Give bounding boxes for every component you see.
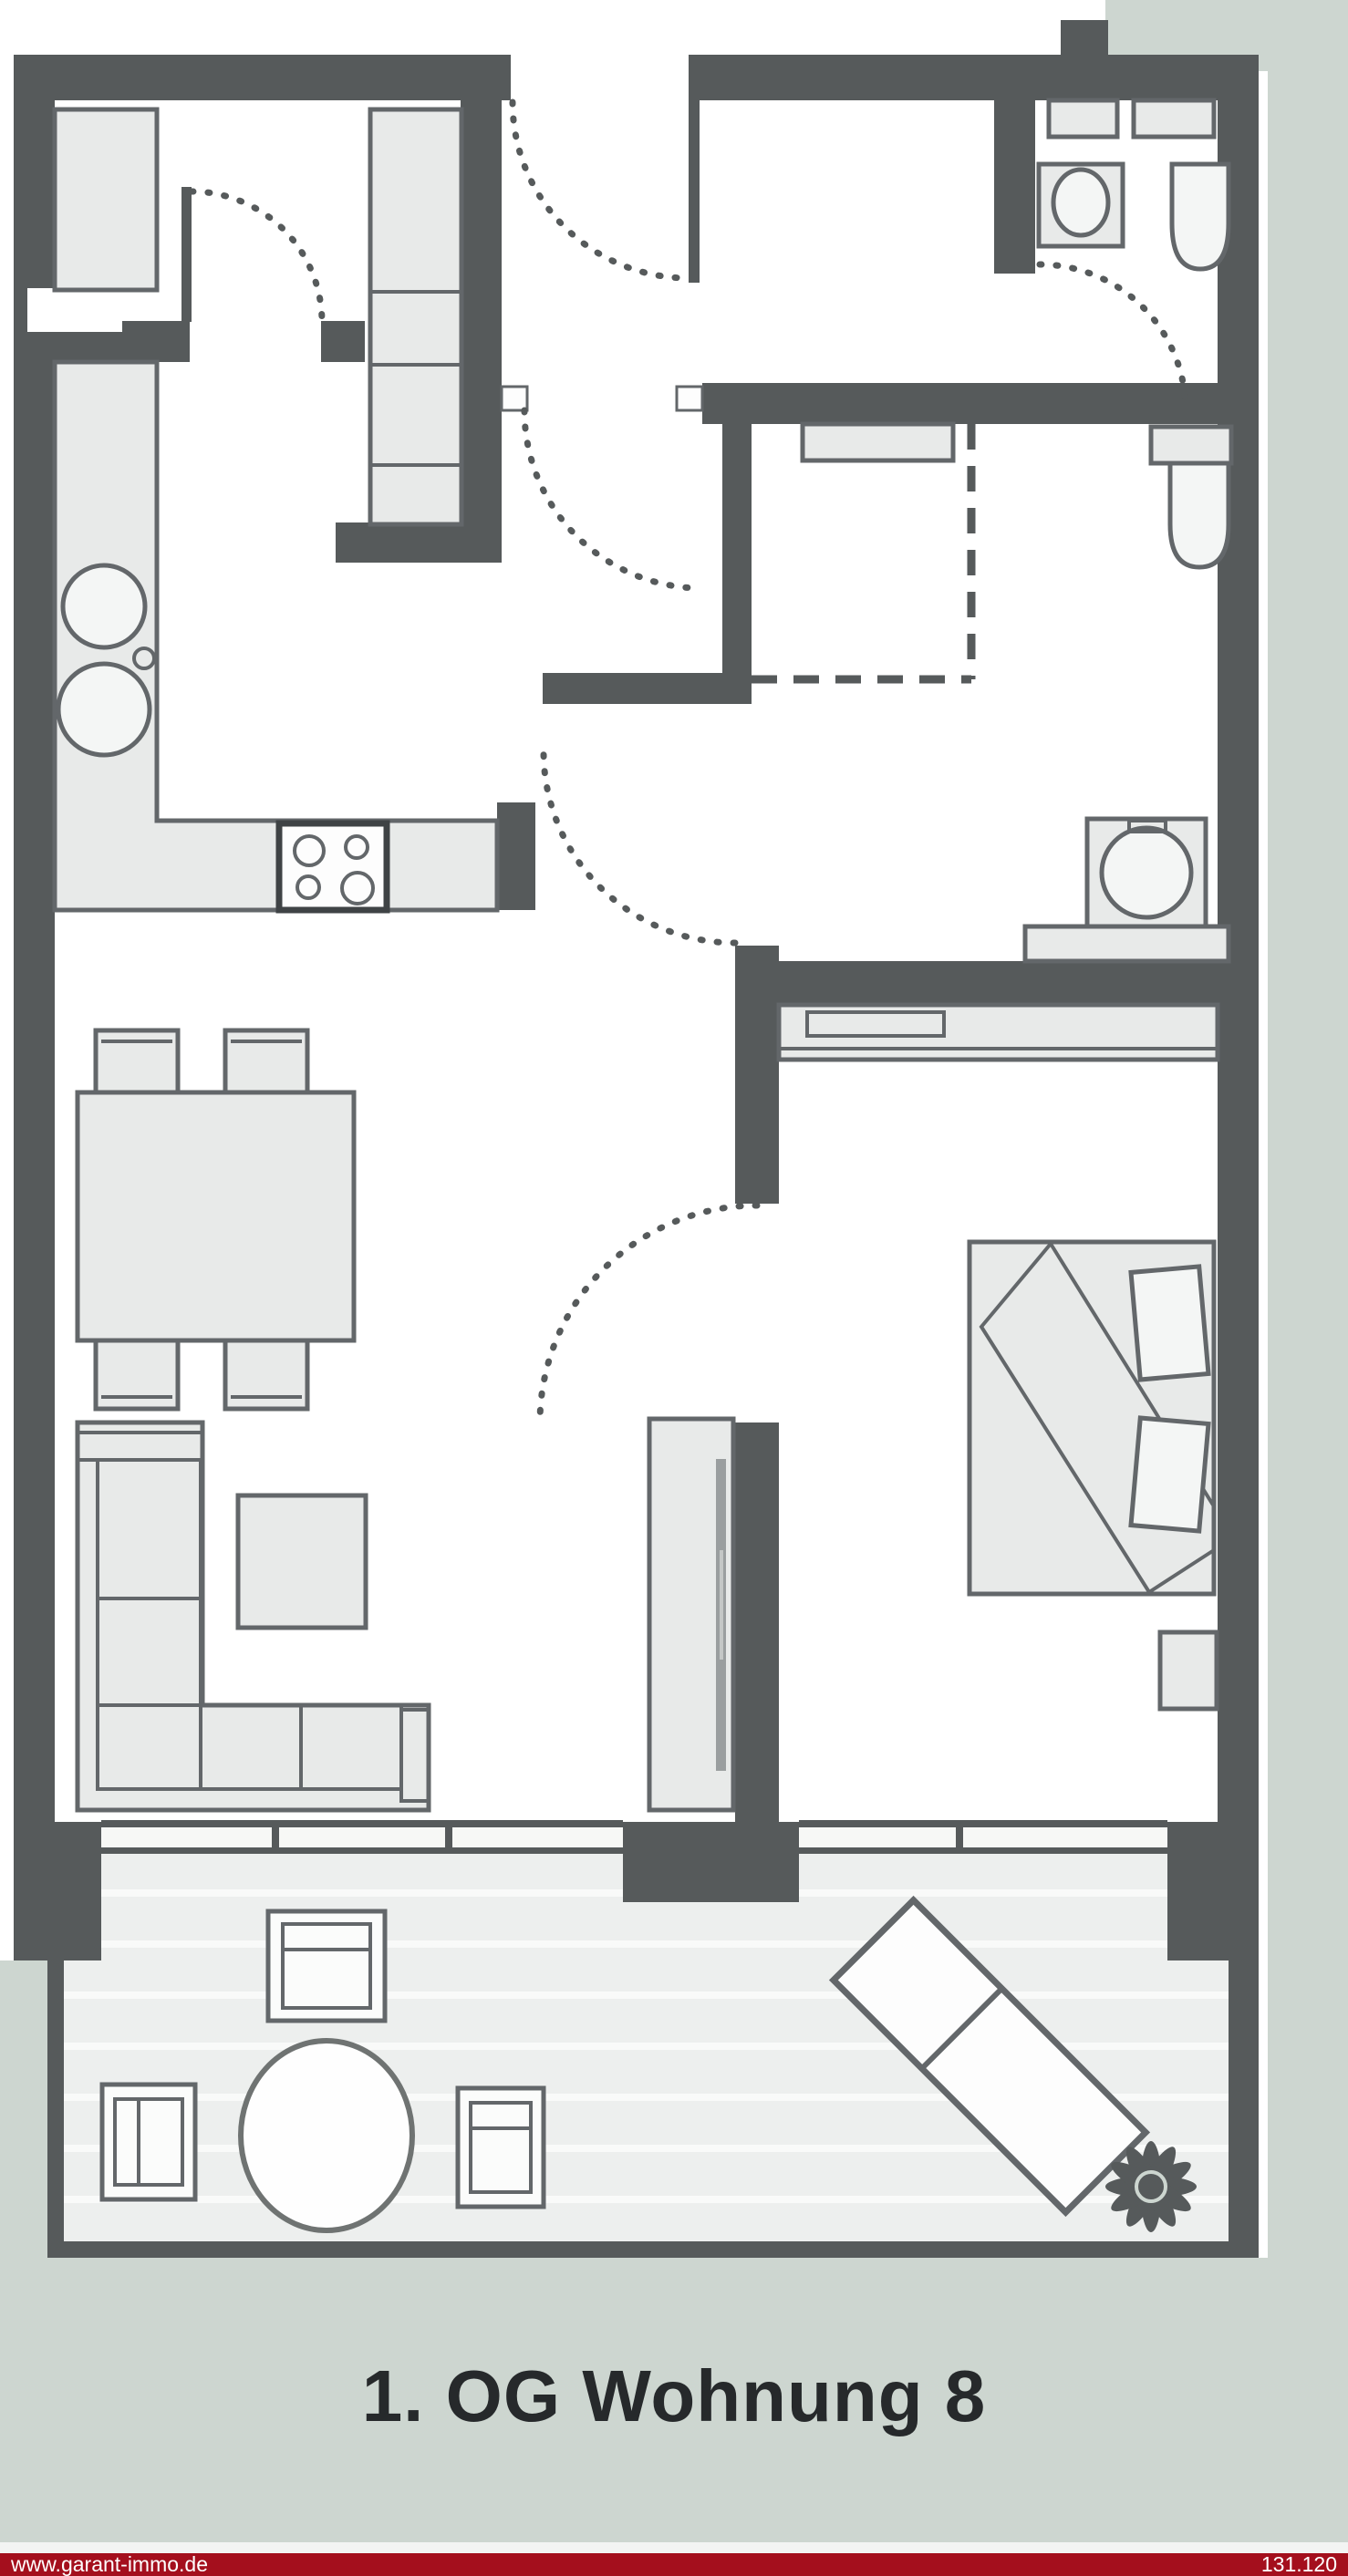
plan-title: 1. OG Wohnung 8 <box>362 2355 987 2436</box>
wc-room <box>1039 100 1229 410</box>
bath-counter <box>1025 926 1229 961</box>
bath-shelf <box>803 424 953 460</box>
balcony-table <box>241 2041 412 2230</box>
pillow <box>1131 1418 1208 1531</box>
living-room <box>78 1419 733 1810</box>
wall-bath-top <box>702 383 1259 424</box>
washing-machine-door <box>1102 828 1191 917</box>
wall-balcony-right <box>1229 1960 1259 2258</box>
nightstand <box>1160 1632 1217 1709</box>
floorplan-svg: 1. OG Wohnung 8 www.garant-immo.de 131.1… <box>0 0 1348 2576</box>
dining-table <box>78 1092 354 1340</box>
wall-balcony-bottom <box>47 2241 1259 2258</box>
wall-hall-bottom <box>543 673 752 704</box>
wall-top-left <box>14 55 511 100</box>
wall-facade-pier <box>623 1822 799 1902</box>
entrance-door-leaf <box>689 100 700 283</box>
storage-cabinet-left <box>55 109 157 290</box>
wall-wc-left <box>994 100 1035 274</box>
bedroom <box>779 1005 1218 1709</box>
wall-corner-bottom-right <box>1167 1822 1259 1960</box>
footer: www.garant-immo.de 131.120 <box>0 2542 1348 2576</box>
kitchen-sink-basin-2 <box>58 664 150 755</box>
wall-top-right <box>689 55 1259 100</box>
door-jamb <box>677 387 702 410</box>
storage-cabinet-right <box>370 109 461 524</box>
wc-toilet <box>1172 164 1229 269</box>
tv-panel-detail <box>720 1550 723 1660</box>
storage-door-leaf <box>181 187 192 322</box>
wall-storage-right <box>461 100 502 538</box>
wall-storage-bottom <box>336 522 502 563</box>
storage-door-swing-arc <box>192 191 322 322</box>
kitchen-sink-basin-1 <box>63 565 145 647</box>
kitchen-door-swing-arc <box>524 410 698 588</box>
bathroom-door-swing-arc <box>544 751 735 943</box>
wc-sink-basin <box>1053 170 1108 235</box>
wall-bath-bottom <box>752 961 1259 1005</box>
wall-kitchen-stub <box>497 802 535 910</box>
wall-niche <box>27 288 122 332</box>
entrance-door-swing-arc <box>513 102 689 278</box>
pillow <box>1131 1267 1208 1380</box>
wall-living-bedroom <box>735 1422 779 1822</box>
coffee-table <box>238 1495 366 1628</box>
toilet <box>1170 463 1229 567</box>
wall-bath-left <box>722 412 752 704</box>
wc-shelf <box>1049 100 1117 137</box>
floorplan-page: 1. OG Wohnung 8 www.garant-immo.de 131.1… <box>0 0 1348 2576</box>
toilet-tank <box>1151 427 1231 463</box>
doors <box>502 100 757 1422</box>
wc-cistern <box>1134 100 1214 137</box>
sage-right-margin <box>1268 71 1348 2258</box>
balcony-chair <box>268 1911 385 2021</box>
wall-balcony-left <box>47 1960 64 2258</box>
wall-corner-bottom-left <box>14 1822 101 1960</box>
dining-area <box>78 1030 354 1409</box>
footer-url: www.garant-immo.de <box>10 2552 208 2576</box>
door-jamb <box>502 387 527 410</box>
bedroom-door-swing-arc <box>540 1205 757 1422</box>
wall-storage-south-stub <box>321 321 365 362</box>
wall-stub-top <box>1061 20 1108 55</box>
footer-plan-number: 131.120 <box>1261 2552 1337 2576</box>
sage-left-of-balcony <box>0 1960 47 2258</box>
